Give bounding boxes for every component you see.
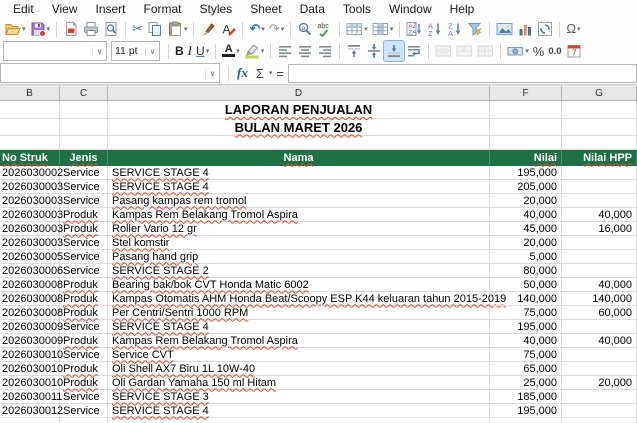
sheet-area: B C D F G LAPORAN PENJUALAN BULAN MARET … <box>0 85 637 423</box>
cell-nama[interactable]: Roller Vario 12 gr <box>108 222 490 236</box>
cell-nilai-hpp[interactable] <box>562 194 637 208</box>
cell[interactable] <box>0 119 60 136</box>
cell[interactable] <box>108 418 490 423</box>
table-row: 2026030010ServiceService CVT75,000 <box>0 348 637 362</box>
cell-jenis[interactable]: Produk <box>60 222 108 236</box>
cell[interactable] <box>60 418 108 423</box>
cell-nama[interactable]: Oli Gardan Yamaha 150 ml Hitam <box>108 376 490 390</box>
print-preview-icon[interactable] <box>101 19 121 39</box>
font-name-combo[interactable]: ∨ <box>3 41 107 61</box>
insert-chart-icon[interactable] <box>515 19 535 39</box>
chevron-down-icon: ▾ <box>364 25 368 33</box>
cell-nilai-hpp[interactable]: 16,000 <box>562 222 637 236</box>
center-vertically-icon[interactable] <box>364 41 384 61</box>
menu-view[interactable]: View <box>43 1 87 17</box>
cell-nama[interactable]: Oli Shell AX7 Biru 1L 10W-40 <box>108 362 490 376</box>
toolbar-separator <box>489 22 490 37</box>
table-row: 2026030012ServiceSERVICE STAGE 4195,000 <box>0 404 637 418</box>
cell-nama[interactable]: Kampas Otomatis AHM Honda Beat/Scoopy ES… <box>108 292 490 306</box>
chevron-down-icon: ▾ <box>390 25 394 33</box>
cell-nilai[interactable]: 45,000 <box>490 222 562 236</box>
menu-insert[interactable]: Insert <box>86 1 134 17</box>
cell-no-struk[interactable]: 2026030006 <box>0 264 60 278</box>
cell-nilai[interactable]: 20,000 <box>490 194 562 208</box>
cell-nama[interactable]: SERVICE STAGE 3 <box>108 390 490 404</box>
paste-icon[interactable]: ▾ <box>165 19 190 39</box>
table-row: 2026030003ServicePasang kampas rem tromo… <box>0 194 637 208</box>
chevron-down-icon: ∨ <box>92 47 106 56</box>
cell[interactable] <box>562 136 637 150</box>
cell-no-struk[interactable]: 2026030008 <box>0 306 60 320</box>
cell-nama[interactable]: SERVICE STAGE 4 <box>108 180 490 194</box>
cell-nilai-hpp[interactable]: 20,000 <box>562 376 637 390</box>
report-title-cell[interactable]: LAPORAN PENJUALAN <box>108 101 490 119</box>
cell[interactable] <box>490 418 562 423</box>
cell-jenis[interactable]: Service <box>60 390 108 404</box>
toolbar-separator <box>290 22 291 37</box>
formatting-toolbar: ∨ 11 pt∨ B I U▾ A▾ ▾ ▾ % 0.0 7 <box>0 40 637 62</box>
column-header-f[interactable]: F <box>490 86 562 101</box>
cell-nilai-hpp[interactable]: 60,000 <box>562 306 637 320</box>
table-row: 2026030005ServicePasang hand grip5,000 <box>0 250 637 264</box>
cell-nilai[interactable]: 195,000 <box>490 404 562 418</box>
chevron-down-icon: ▾ <box>261 25 265 33</box>
toolbar-separator <box>399 22 400 37</box>
cell[interactable] <box>60 136 108 150</box>
toolbar-separator <box>215 44 216 59</box>
cell[interactable] <box>108 136 490 150</box>
chevron-down-icon: ▾ <box>22 25 26 33</box>
merge-cells-icon[interactable] <box>454 41 475 61</box>
sort-ascending-icon[interactable]: AZ <box>425 19 445 39</box>
menu-styles[interactable]: Styles <box>191 1 242 17</box>
cell-nilai[interactable]: 20,000 <box>490 236 562 250</box>
cell-jenis[interactable]: Produk <box>60 306 108 320</box>
standard-toolbar: ▾ ▾ ✂ ▾ A ↶▾ ↷▾ a abc ▾ ▾ AZZA AZ ZA Ω▾ <box>0 18 637 40</box>
table-row: 2026030008ProdukBearing bak/bok CVT Hond… <box>0 278 637 292</box>
cell-jenis[interactable]: Produk <box>60 362 108 376</box>
cell-no-struk[interactable]: 2026030010 <box>0 362 60 376</box>
toolbar-separator <box>559 22 560 37</box>
special-character-icon[interactable]: Ω▾ <box>564 19 582 39</box>
toolbar-separator <box>228 66 229 81</box>
cell-nilai[interactable]: 40,000 <box>490 334 562 348</box>
cell-no-struk[interactable]: 2026030010 <box>0 348 60 362</box>
menu-sheet[interactable]: Sheet <box>241 1 290 17</box>
copy-icon[interactable] <box>145 19 165 39</box>
cell-no-struk[interactable]: 2026030008 <box>0 292 60 306</box>
formula-input[interactable] <box>288 64 637 83</box>
print-icon[interactable] <box>81 19 101 39</box>
number-format-icon[interactable]: 0.0 <box>546 41 563 61</box>
menu-data[interactable]: Data <box>291 1 334 17</box>
cell[interactable] <box>0 101 60 119</box>
column-header-g[interactable]: G <box>562 86 637 101</box>
toolbar-separator <box>242 22 243 37</box>
sort-descending-icon[interactable]: ZA <box>445 19 465 39</box>
formula-icon[interactable]: = <box>272 66 288 81</box>
percent-icon[interactable]: % <box>531 41 547 61</box>
cell-nilai[interactable]: 80,000 <box>490 264 562 278</box>
cell-nama[interactable]: Bearing bak/bok CVT Honda Matic 6002 <box>108 278 490 292</box>
cell-nilai[interactable]: 195,000 <box>490 320 562 334</box>
align-right-icon[interactable] <box>315 41 335 61</box>
table-header-row: No Struk Jenis Nama Nilai Nilai HPP <box>0 150 637 166</box>
menu-edit[interactable]: Edit <box>4 1 43 17</box>
table-row: 2026030003ServiceStel komstir20,000 <box>0 236 637 250</box>
cut-icon[interactable]: ✂ <box>130 19 145 39</box>
undo-icon[interactable]: ↶▾ <box>247 19 266 39</box>
svg-text:a: a <box>302 25 306 32</box>
menu-window[interactable]: Window <box>380 1 441 17</box>
sum-icon[interactable]: Σ <box>252 66 268 81</box>
cell-nilai[interactable]: 75,000 <box>490 306 562 320</box>
header-nama[interactable]: Nama <box>108 150 490 166</box>
cell-jenis[interactable]: Service <box>60 404 108 418</box>
table-row: 2026030006ServiceSERVICE STAGE 280,000 <box>0 264 637 278</box>
cell-no-struk[interactable]: 2026030003 <box>0 180 60 194</box>
italic-button[interactable]: I <box>186 41 194 61</box>
table-row: 2026030008ProdukKampas Otomatis AHM Hond… <box>0 292 637 306</box>
header-jenis[interactable]: Jenis <box>60 150 108 166</box>
cell-no-struk[interactable]: 2026030010 <box>0 376 60 390</box>
table-row: 2026030010ProdukOli Gardan Yamaha 150 ml… <box>0 376 637 390</box>
cell-nama[interactable]: Kampas Rem Belakang Tromol Aspira <box>108 208 490 222</box>
cell-nilai[interactable]: 40,000 <box>490 208 562 222</box>
export-pdf-icon[interactable] <box>61 19 81 39</box>
cell-nilai-hpp[interactable] <box>562 236 637 250</box>
table-row: 2026030011ServiceSERVICE STAGE 3185,000 <box>0 390 637 404</box>
svg-text:Z: Z <box>428 29 433 37</box>
cell-nilai-hpp[interactable]: 140,000 <box>562 292 637 306</box>
toolbar-separator <box>168 44 169 59</box>
cell-jenis[interactable]: Produk <box>60 208 108 222</box>
clone-formatting-icon[interactable] <box>198 19 218 39</box>
table-row: 2026030002ServiceSERVICE STAGE 4195,000 <box>0 166 637 180</box>
cell-nilai-hpp[interactable] <box>562 362 637 376</box>
align-top-icon[interactable] <box>344 41 364 61</box>
cell-nama[interactable]: SERVICE STAGE 2 <box>108 264 490 278</box>
cell-nilai[interactable]: 75,000 <box>490 348 562 362</box>
svg-text:abc: abc <box>318 23 330 30</box>
header-no-struk[interactable]: No Struk <box>0 150 60 166</box>
table-row: 2026030009ServiceSERVICE STAGE 4195,000 <box>0 320 637 334</box>
menu-format[interactable]: Format <box>135 1 191 17</box>
menu-tools[interactable]: Tools <box>334 1 380 17</box>
cell-nama[interactable]: Stel komstir <box>108 236 490 250</box>
data-rows: 2026030002ServiceSERVICE STAGE 4195,0002… <box>0 166 637 418</box>
table-row: 2026030003ProdukRoller Vario 12 gr45,000… <box>0 222 637 236</box>
cell-nilai[interactable]: 65,000 <box>490 362 562 376</box>
cell-nama[interactable]: Pasang hand grip <box>108 250 490 264</box>
cell[interactable] <box>490 136 562 150</box>
redo-icon[interactable]: ↷▾ <box>267 19 286 39</box>
cell-jenis[interactable]: Produk <box>60 278 108 292</box>
font-size-combo[interactable]: 11 pt∨ <box>111 41 160 61</box>
cell[interactable] <box>490 101 562 119</box>
menubar: EditViewInsertFormatStylesSheetDataTools… <box>0 0 637 18</box>
cell-no-struk[interactable]: 2026030009 <box>0 334 60 348</box>
cell-nilai[interactable]: 50,000 <box>490 278 562 292</box>
cell-nama[interactable]: SERVICE STAGE 4 <box>108 404 490 418</box>
cell-nilai-hpp[interactable] <box>562 250 637 264</box>
cell[interactable] <box>60 101 108 119</box>
cell-jenis[interactable]: Produk <box>60 376 108 390</box>
function-wizard-icon[interactable]: fx <box>233 65 252 81</box>
clear-formatting-icon[interactable]: A <box>218 19 238 39</box>
table-row: 2026030010ProdukOli Shell AX7 Biru 1L 10… <box>0 362 637 376</box>
cell-jenis[interactable]: Produk <box>60 292 108 306</box>
cell[interactable] <box>562 119 637 136</box>
chevron-down-icon: ▾ <box>281 25 285 33</box>
chevron-down-icon: ▾ <box>184 25 188 33</box>
toolbar-separator <box>270 44 271 59</box>
cell-nilai-hpp[interactable]: 40,000 <box>562 208 637 222</box>
cell-nama[interactable]: SERVICE STAGE 4 <box>108 166 490 180</box>
header-nilai-hpp[interactable]: Nilai HPP <box>562 150 637 166</box>
cell[interactable] <box>60 119 108 136</box>
align-left-icon[interactable] <box>275 41 295 61</box>
cell-no-struk[interactable]: 2026030003 <box>0 222 60 236</box>
cell-nama[interactable]: Kampas Rem Belakang Tromol Aspira <box>108 334 490 348</box>
report-title: LAPORAN PENJUALAN <box>225 102 372 117</box>
wrap-text-icon[interactable] <box>404 41 424 61</box>
menu-help[interactable]: Help <box>441 1 484 17</box>
column-headers: B C D F G <box>0 86 637 101</box>
rows-icon[interactable]: ▾ <box>344 19 370 39</box>
open-icon[interactable]: ▾ <box>3 19 28 39</box>
report-subtitle: BULAN MARET 2026 <box>235 120 363 135</box>
spelling-icon[interactable]: abc <box>315 19 335 39</box>
table-row: 2026030003ServiceSERVICE STAGE 4205,000 <box>0 180 637 194</box>
cell-nilai[interactable]: 5,000 <box>490 250 562 264</box>
cell-nilai[interactable]: 185,000 <box>490 390 562 404</box>
toolbar-separator <box>193 22 194 37</box>
cell-no-struk[interactable]: 2026030008 <box>0 278 60 292</box>
toolbar-separator <box>339 22 340 37</box>
table-row: 2026030003ProdukKampas Rem Belakang Trom… <box>0 208 637 222</box>
cell-jenis[interactable]: Service <box>60 348 108 362</box>
column-header-b[interactable]: B <box>0 86 60 101</box>
cell-no-struk[interactable]: 2026030003 <box>0 236 60 250</box>
chevron-down-icon: ▾ <box>236 47 240 55</box>
chevron-down-icon: ▾ <box>261 47 265 55</box>
header-nilai[interactable]: Nilai <box>490 150 562 166</box>
cell-nama[interactable]: Per Centri/Sentri 1000 RPM <box>108 306 490 320</box>
empty-row <box>0 136 637 150</box>
toolbar-separator <box>56 22 57 37</box>
bold-button[interactable]: B <box>173 41 186 61</box>
cell-jenis[interactable]: Service <box>60 264 108 278</box>
toolbar-separator <box>500 44 501 59</box>
formula-bar: ∨ fx Σ ▾ = <box>0 62 637 85</box>
cell-nilai-hpp[interactable] <box>562 180 637 194</box>
title-row-2: BULAN MARET 2026 <box>0 119 637 136</box>
cell-jenis[interactable]: Service <box>60 320 108 334</box>
column-header-c[interactable]: C <box>60 86 108 101</box>
cell-no-struk[interactable]: 2026030012 <box>0 404 60 418</box>
title-row-1: LAPORAN PENJUALAN <box>0 101 637 119</box>
cell-nilai-hpp[interactable] <box>562 264 637 278</box>
cell-nilai-hpp[interactable]: 40,000 <box>562 278 637 292</box>
cell-no-struk[interactable]: 2026030009 <box>0 320 60 334</box>
columns-icon[interactable]: ▾ <box>370 19 396 39</box>
cell-nilai[interactable]: 195,000 <box>490 166 562 180</box>
chevron-down-icon: ▾ <box>577 25 581 33</box>
chevron-down-icon: ▾ <box>47 25 51 33</box>
cell-nama[interactable]: Service CVT <box>108 348 490 362</box>
insert-image-icon[interactable] <box>494 19 515 39</box>
empty-row <box>0 418 637 423</box>
cell-no-struk[interactable]: 2026030002 <box>0 166 60 180</box>
cell-nilai-hpp[interactable] <box>562 166 637 180</box>
table-row: 2026030008ProdukPer Centri/Sentri 1000 R… <box>0 306 637 320</box>
toolbar-separator <box>125 22 126 37</box>
autofilter-icon[interactable] <box>465 19 485 39</box>
cell-jenis[interactable]: Service <box>60 250 108 264</box>
unmerge-cells-icon[interactable] <box>475 41 496 61</box>
chevron-down-icon: ▾ <box>206 47 210 55</box>
chevron-down-icon: ∨ <box>145 47 159 56</box>
cell[interactable] <box>562 418 637 423</box>
cell-nilai[interactable]: 205,000 <box>490 180 562 194</box>
spreadsheet-window: EditViewInsertFormatStylesSheetDataTools… <box>0 0 637 423</box>
font-color-icon[interactable]: A▾ <box>220 41 242 61</box>
currency-icon[interactable]: ▾ <box>505 41 531 61</box>
cell[interactable] <box>0 136 60 150</box>
cell-nilai-hpp[interactable] <box>562 390 637 404</box>
find-replace-icon[interactable]: a <box>295 19 315 39</box>
cell-no-struk[interactable]: 2026030011 <box>0 390 60 404</box>
cell-jenis[interactable]: Service <box>60 166 108 180</box>
column-header-d[interactable]: D <box>108 86 490 101</box>
cell-jenis[interactable]: Service <box>60 180 108 194</box>
report-subtitle-cell[interactable]: BULAN MARET 2026 <box>108 119 490 136</box>
chevron-down-icon: ∨ <box>205 69 219 78</box>
cell-nilai-hpp[interactable] <box>562 348 637 362</box>
align-bottom-icon[interactable] <box>384 41 404 61</box>
pivot-table-icon[interactable] <box>535 19 555 39</box>
svg-text:A: A <box>448 29 453 37</box>
cell-jenis[interactable]: Produk <box>60 334 108 348</box>
align-center-icon[interactable] <box>295 41 315 61</box>
cell[interactable] <box>0 418 60 423</box>
cell-no-struk[interactable]: 2026030003 <box>0 194 60 208</box>
cell-nilai-hpp[interactable]: 40,000 <box>562 334 637 348</box>
chevron-down-icon: ▾ <box>525 47 529 55</box>
cell-no-struk[interactable]: 2026030005 <box>0 250 60 264</box>
svg-text:ZA: ZA <box>409 30 418 37</box>
cell[interactable] <box>562 101 637 119</box>
cell-nilai-hpp[interactable] <box>562 320 637 334</box>
save-icon[interactable]: ▾ <box>28 19 53 39</box>
cell-nilai[interactable]: 140,000 <box>490 292 562 306</box>
merge-center-icon[interactable] <box>433 41 454 61</box>
cell-nilai-hpp[interactable] <box>562 404 637 418</box>
sort-icon[interactable]: AZZA <box>404 19 425 39</box>
date-format-icon[interactable]: 7 <box>564 41 584 61</box>
toolbar-separator <box>339 44 340 59</box>
name-box[interactable]: ∨ <box>0 63 220 83</box>
table-row: 2026030009ProdukKampas Rem Belakang Trom… <box>0 334 637 348</box>
cell-jenis[interactable]: Service <box>60 194 108 208</box>
toolbar-separator <box>428 44 429 59</box>
svg-text:7: 7 <box>572 49 577 58</box>
cell-nilai[interactable]: 25,000 <box>490 376 562 390</box>
cell-grid: LAPORAN PENJUALAN BULAN MARET 2026 <box>0 101 637 423</box>
cell-no-struk[interactable]: 2026030003 <box>0 208 60 222</box>
underline-button[interactable]: U▾ <box>194 41 211 61</box>
cell-nama[interactable]: Pasang kampas rem tromol <box>108 194 490 208</box>
cell[interactable] <box>490 119 562 136</box>
cell-jenis[interactable]: Service <box>60 236 108 250</box>
cell-nama[interactable]: SERVICE STAGE 4 <box>108 320 490 334</box>
highlight-color-icon[interactable]: ▾ <box>242 41 267 61</box>
